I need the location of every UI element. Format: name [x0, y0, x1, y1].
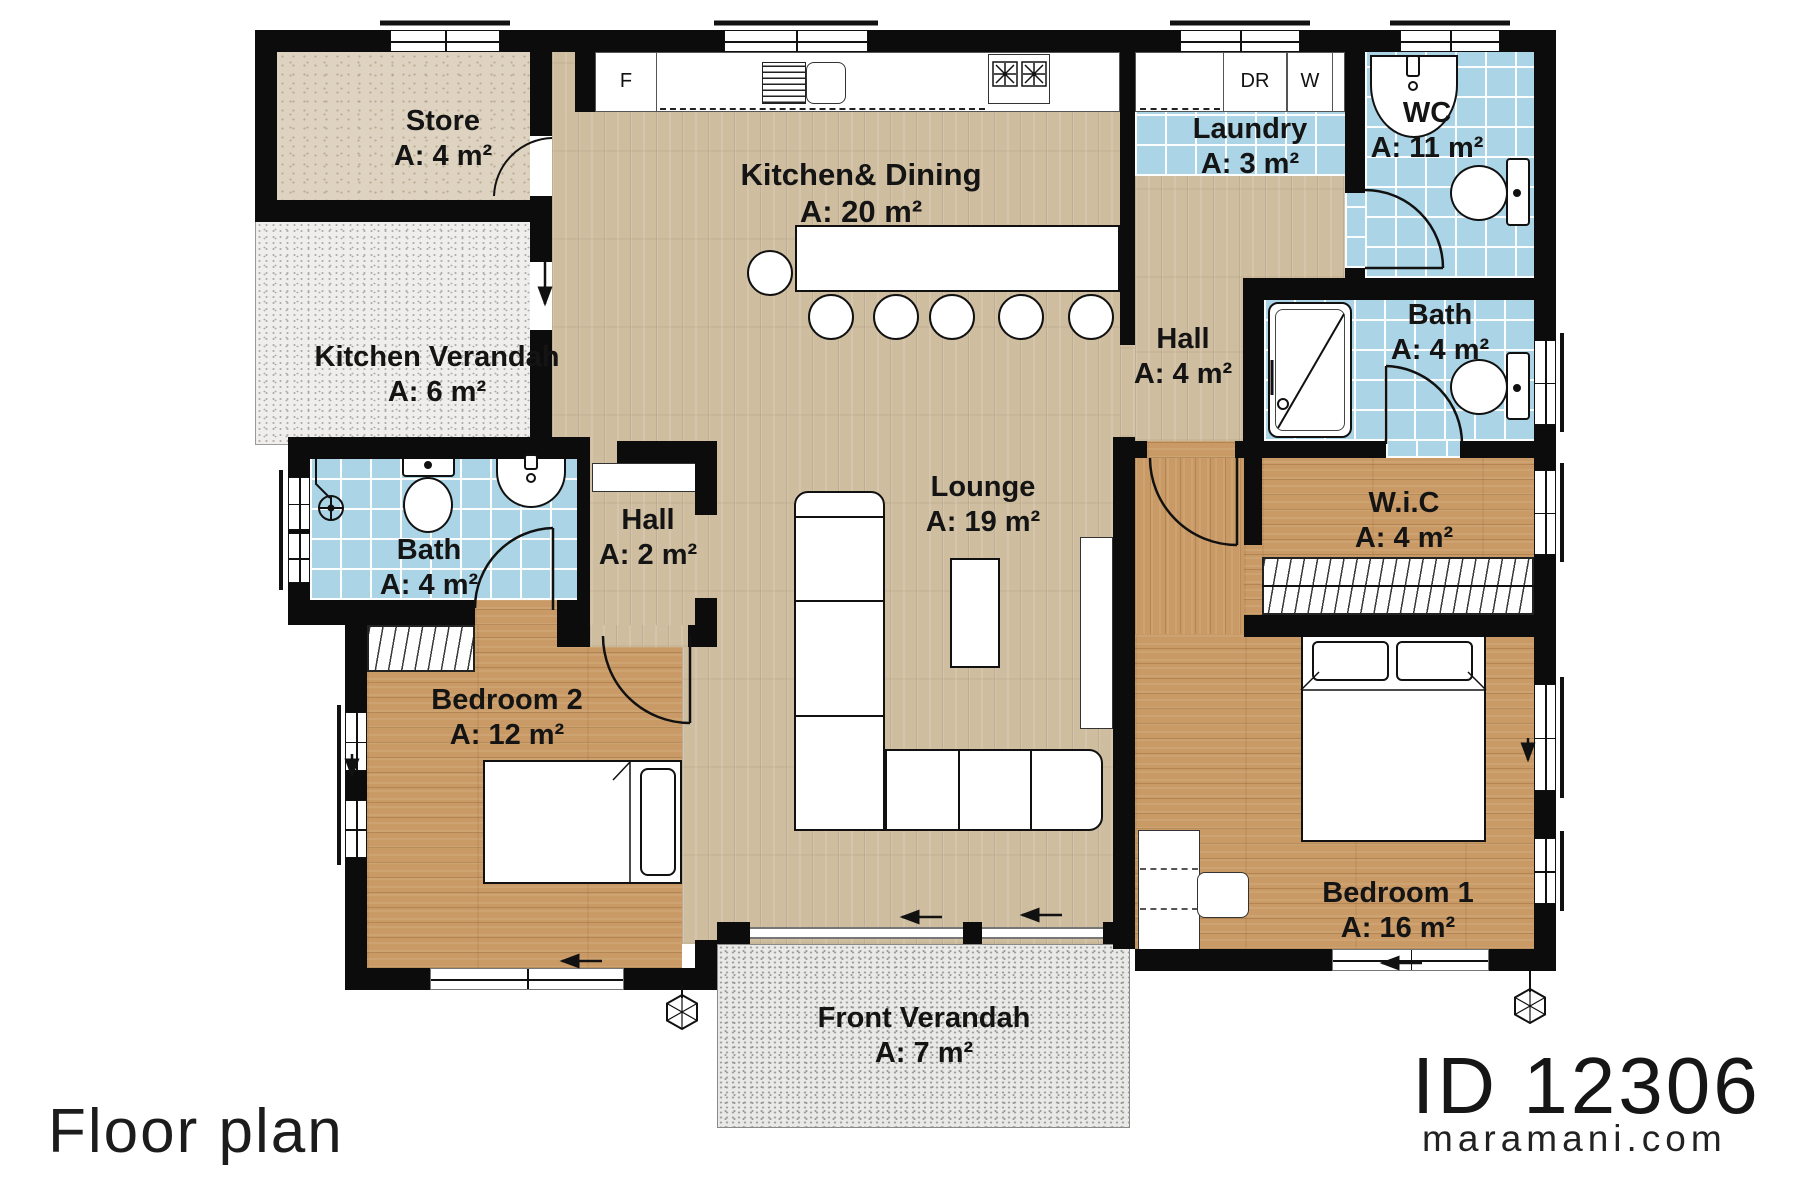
room-label-kitchen-dining: Kitchen& Dining A: 20 m² [740, 156, 981, 230]
room-label-bedroom1: Bedroom 1 A: 16 m² [1322, 876, 1473, 946]
website-label: maramani.com [1422, 1118, 1727, 1160]
room-label-wic: W.i.C A: 4 m² [1355, 486, 1453, 556]
room-label-store: Store A: 4 m² [394, 104, 492, 174]
room-label-hall-right: Hall A: 4 m² [1134, 322, 1232, 392]
room-label-bath-left: Bath A: 4 m² [380, 533, 478, 603]
faucet-icon [425, 56, 1520, 482]
room-label-kitchen-verandah: Kitchen Verandah A: 6 m² [315, 340, 560, 410]
floor-plan-canvas: F DR W [0, 0, 1800, 1200]
room-label-bath-right: Bath A: 4 m² [1391, 298, 1489, 368]
page-title: Floor plan [48, 1096, 344, 1167]
room-label-lounge: Lounge A: 19 m² [926, 470, 1040, 540]
room-label-laundry: Laundry A: 3 m² [1193, 112, 1307, 182]
room-label-front-verandah: Front Verandah A: 7 m² [818, 1001, 1031, 1071]
stove-burner-icon [993, 62, 1046, 86]
shower-head-icon [316, 459, 343, 520]
bed-fold-line [613, 672, 1486, 882]
room-label-hall-left: Hall A: 2 m² [599, 503, 697, 573]
shower-icon [1272, 314, 1344, 428]
room-label-wc: WC A: 11 m² [1371, 96, 1484, 166]
room-label-bedroom2: Bedroom 2 A: 12 m² [431, 683, 582, 753]
downpipe-icon [667, 971, 1545, 1029]
